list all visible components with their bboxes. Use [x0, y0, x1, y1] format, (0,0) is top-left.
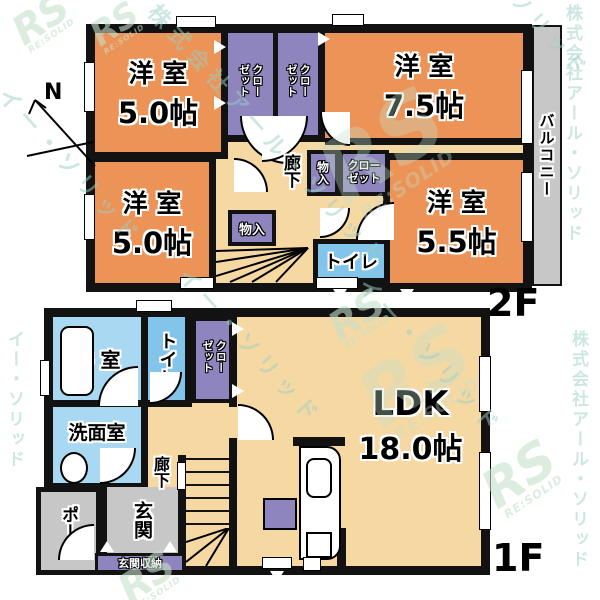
- floor1-entrance-storage: 玄関収納: [95, 553, 185, 573]
- closet-label: クローゼット: [201, 340, 227, 380]
- floor1-ldk: LDK 18.0帖: [328, 388, 493, 464]
- closet-label: クローゼット: [285, 64, 311, 104]
- watermark-logo: RSRE:SOLID: [7, 0, 78, 56]
- storage-label: 物入: [239, 219, 265, 238]
- washroom-label: 洗面室: [68, 418, 125, 445]
- window: [84, 194, 95, 240]
- ldk-size: 18.0帖: [358, 424, 462, 468]
- room-name: 洋 室: [123, 184, 182, 220]
- storage-label: 物入: [315, 161, 332, 185]
- floor1-stairs-treads: [186, 458, 229, 530]
- window: [177, 462, 186, 490]
- door-marker: [100, 541, 114, 552]
- door-marker: [163, 541, 177, 552]
- floor2-stairs: [216, 246, 310, 283]
- watermark-company-text: 株式会社アール・ソリッド: [560, 4, 585, 244]
- entrance-storage-label: 玄関収納: [118, 555, 162, 571]
- watermark-logo-subtext: RE:SOLID: [134, 577, 183, 600]
- door-marker: [214, 96, 226, 110]
- floor1-label: 1F: [492, 536, 544, 580]
- window: [521, 172, 533, 242]
- toilet-label: トイレ: [324, 248, 378, 274]
- floor2-room-se: 洋 室 5.5帖: [383, 153, 523, 283]
- floor2-balcony: バルコニー: [532, 25, 562, 286]
- kitchen-stove: [306, 532, 332, 558]
- closet-label: クローゼット: [237, 64, 263, 104]
- floor2-room-nw: 洋 室 5.0帖: [95, 33, 228, 159]
- window: [479, 452, 491, 530]
- window: [176, 16, 216, 28]
- wall: [229, 438, 237, 566]
- floor2-room-ne: 洋 室 7.5帖: [325, 33, 523, 145]
- room-size: 7.5帖: [384, 83, 464, 125]
- floorplan-canvas: RSRE:SOLID RSRE:SOLID RSRE:SOLID RSRE:SO…: [0, 0, 600, 600]
- window: [303, 557, 321, 571]
- door-marker: [333, 289, 347, 300]
- room-name: 洋 室: [129, 54, 188, 90]
- door-marker: [270, 571, 284, 582]
- room-size: 5.0帖: [112, 220, 192, 262]
- room-size: 5.5帖: [416, 219, 496, 261]
- window: [136, 300, 172, 312]
- watermark-logo-text: RS: [7, 0, 74, 50]
- entrance-label: 玄関: [129, 501, 156, 539]
- floor2-label: 2F: [487, 281, 539, 325]
- watermark-company-text: イー・ソリッド: [2, 330, 27, 470]
- floor2-closet-mid: クローゼット: [339, 150, 389, 196]
- room-name: 洋 室: [395, 47, 454, 83]
- watermark-logo-subtext: RE:SOLID: [28, 19, 77, 56]
- door-marker: [232, 384, 244, 398]
- ldk-name: LDK: [372, 384, 448, 424]
- balcony-label: バルコニー: [537, 113, 558, 198]
- floor2-room-sw: 洋 室 5.0帖: [95, 155, 216, 283]
- bathtub: [60, 326, 94, 396]
- floor2-hallway-label: 廊下: [278, 154, 303, 188]
- door-marker: [400, 289, 414, 300]
- sink: [60, 452, 88, 484]
- kitchen-sink: [306, 458, 332, 498]
- room-size: 5.0帖: [118, 90, 198, 132]
- window: [262, 557, 292, 569]
- window: [180, 277, 214, 289]
- door-marker: [318, 32, 330, 46]
- kitchen-island: [263, 498, 297, 530]
- window: [332, 14, 364, 26]
- window: [521, 70, 533, 144]
- closet-label: クローゼット: [346, 160, 382, 185]
- window: [40, 360, 50, 396]
- watermark-company-text: 株式会社アール・ソリッド: [566, 330, 591, 570]
- watermark-logo-subtext: RE:SOLID: [503, 474, 565, 520]
- room-name: 洋 室: [427, 183, 486, 219]
- window: [479, 356, 491, 412]
- floor1-hallway-label: 廊下: [148, 456, 172, 488]
- door-marker: [214, 40, 226, 54]
- floor2-storage-mid: 物入: [307, 150, 339, 196]
- window: [316, 277, 358, 289]
- floor2-storage-left: 物入: [228, 210, 276, 246]
- compass-arrow-icon: [25, 96, 110, 176]
- floor1-stairs-winders: [186, 528, 229, 566]
- door-marker: [232, 322, 244, 336]
